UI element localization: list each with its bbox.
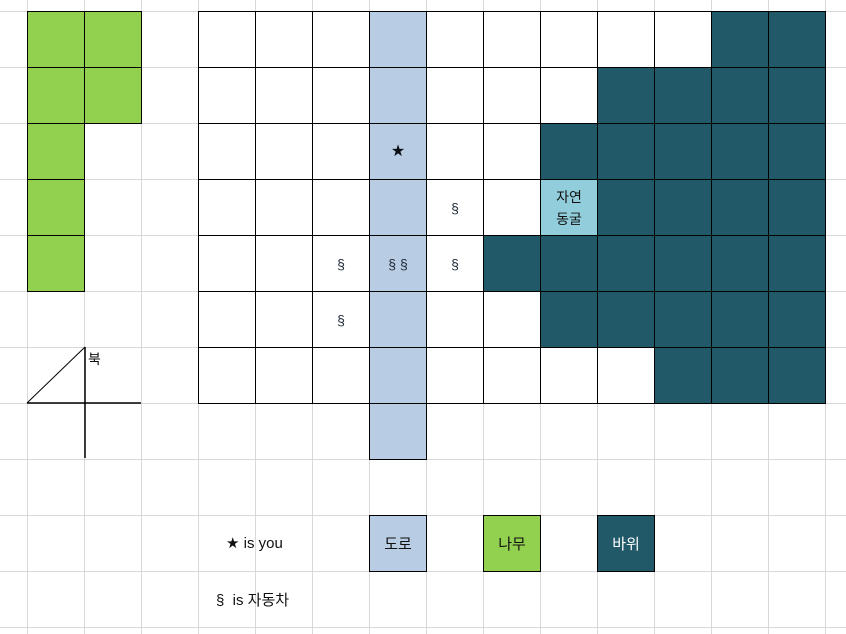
empty-cell xyxy=(483,67,541,124)
tree-cell xyxy=(27,179,85,236)
empty-cell xyxy=(255,347,313,404)
rock-cell xyxy=(654,347,712,404)
rock-cell xyxy=(483,235,541,292)
empty-cell xyxy=(597,347,655,404)
tree-cell xyxy=(27,235,85,292)
empty-cell xyxy=(312,11,370,68)
tree-cell xyxy=(27,67,85,124)
rock-cell xyxy=(597,123,655,180)
legend-tree-swatch: 나무 xyxy=(483,515,541,572)
empty-cell xyxy=(312,179,370,236)
rock-cell xyxy=(711,11,769,68)
road-cell xyxy=(369,67,427,124)
empty-cell: § xyxy=(312,291,370,348)
empty-cell xyxy=(198,123,256,180)
tree-cell xyxy=(27,123,85,180)
empty-cell xyxy=(198,67,256,124)
rock-cell xyxy=(654,235,712,292)
empty-cell xyxy=(312,347,370,404)
map-canvas: ★§자연동굴§§ §§§ 북 ★ is you § is 자동차 도로 나무 바… xyxy=(0,0,846,634)
empty-cell xyxy=(255,67,313,124)
rock-cell xyxy=(711,235,769,292)
tree-cell xyxy=(84,67,142,124)
rock-cell xyxy=(711,347,769,404)
compass-north-label: 북 xyxy=(88,349,101,369)
empty-cell xyxy=(426,291,484,348)
rock-cell xyxy=(768,11,826,68)
empty-cell xyxy=(255,291,313,348)
road-cell: § § xyxy=(369,235,427,292)
empty-cell xyxy=(426,11,484,68)
rock-cell xyxy=(768,123,826,180)
empty-cell xyxy=(483,347,541,404)
player-star-icon: ★ xyxy=(391,144,405,160)
rock-cell xyxy=(654,123,712,180)
empty-cell xyxy=(426,67,484,124)
car-symbol: § xyxy=(337,313,345,327)
empty-cell xyxy=(540,67,598,124)
legend-rock-label: 바위 xyxy=(612,533,640,554)
rock-cell xyxy=(768,235,826,292)
rock-cell xyxy=(540,123,598,180)
legend-road-swatch: 도로 xyxy=(369,515,427,572)
rock-cell xyxy=(768,347,826,404)
rock-cell xyxy=(711,67,769,124)
empty-cell xyxy=(198,11,256,68)
rock-cell xyxy=(597,291,655,348)
car-symbol: § xyxy=(337,257,345,271)
road-cell xyxy=(369,291,427,348)
cave-label-line1: 자연 xyxy=(556,186,582,208)
rock-cell xyxy=(768,67,826,124)
cave-label-line2: 동굴 xyxy=(556,208,582,230)
empty-cell: § xyxy=(426,235,484,292)
rock-cell xyxy=(768,179,826,236)
rock-cell xyxy=(768,291,826,348)
empty-cell: § xyxy=(426,179,484,236)
empty-cell: § xyxy=(312,235,370,292)
cave-cell: 자연동굴 xyxy=(540,179,598,236)
empty-cell xyxy=(255,235,313,292)
legend-tree-label: 나무 xyxy=(498,533,526,554)
empty-cell xyxy=(198,235,256,292)
rock-cell xyxy=(654,67,712,124)
rock-cell xyxy=(597,179,655,236)
road-cell xyxy=(369,347,427,404)
road-cell xyxy=(369,403,427,460)
empty-cell xyxy=(483,291,541,348)
rock-cell xyxy=(540,235,598,292)
rock-cell xyxy=(711,179,769,236)
rock-cell xyxy=(654,291,712,348)
empty-cell xyxy=(312,67,370,124)
empty-cell xyxy=(255,123,313,180)
car-symbol: § § xyxy=(388,257,407,271)
road-cell xyxy=(369,179,427,236)
road-cell xyxy=(369,11,427,68)
legend-car-text: § is 자동차 xyxy=(216,571,289,627)
empty-cell xyxy=(540,11,598,68)
rock-cell xyxy=(711,291,769,348)
empty-cell xyxy=(198,347,256,404)
empty-cell xyxy=(426,123,484,180)
rock-cell xyxy=(597,235,655,292)
north-compass-icon xyxy=(20,340,150,466)
rock-cell xyxy=(711,123,769,180)
empty-cell xyxy=(654,11,712,68)
car-symbol: § xyxy=(451,257,459,271)
legend-player-text: ★ is you xyxy=(226,515,283,571)
tree-cell xyxy=(84,11,142,68)
empty-cell xyxy=(426,347,484,404)
empty-cell xyxy=(255,179,313,236)
car-symbol: § xyxy=(451,201,459,215)
empty-cell xyxy=(483,123,541,180)
empty-cell xyxy=(597,11,655,68)
empty-cell xyxy=(255,11,313,68)
tree-cell xyxy=(27,11,85,68)
empty-cell xyxy=(483,179,541,236)
road-cell: ★ xyxy=(369,123,427,180)
empty-cell xyxy=(483,11,541,68)
empty-cell xyxy=(312,123,370,180)
empty-cell xyxy=(198,291,256,348)
rock-cell xyxy=(597,67,655,124)
rock-cell xyxy=(654,179,712,236)
rock-cell xyxy=(540,291,598,348)
empty-cell xyxy=(540,347,598,404)
empty-cell xyxy=(198,179,256,236)
legend-rock-swatch: 바위 xyxy=(597,515,655,572)
legend-road-label: 도로 xyxy=(384,533,412,554)
